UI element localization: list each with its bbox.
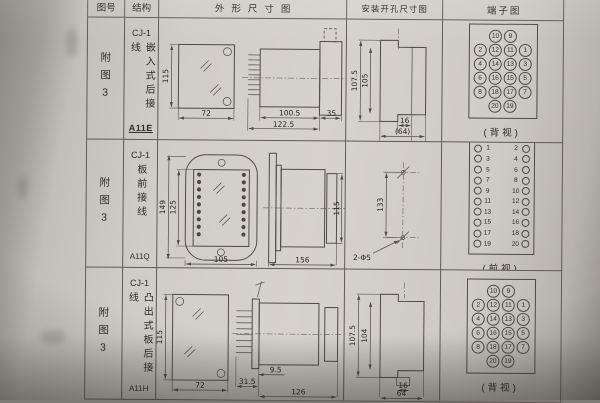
terminal-dot [522,145,530,153]
model-label: CJ-1 [132,28,151,38]
terminal-number-9: 9 [482,187,494,194]
model-label: CJ-1 [130,278,149,288]
terminal-circle-1: 1 [519,44,532,57]
dim-notch-width: 16 [400,116,410,125]
terminal-circle-14: 14 [487,313,500,326]
terminal-circle-6: 6 [474,72,487,85]
terminal-dot [473,219,481,227]
view-label-rear: (背视) [481,380,518,394]
terminal-circle-1: 1 [517,299,530,312]
figure-no-r2: 附图3 [86,140,124,268]
terminal-spacer [472,356,483,367]
dim-flange-depth: 35 [327,108,337,117]
terminal-circle-6: 6 [472,327,485,340]
terminal-circle-4: 4 [474,58,487,71]
dim-front-height: 115 [156,329,164,344]
terminal-dot [522,187,530,195]
terminal-circle-7: 7 [516,341,529,354]
terminal-circle-2: 2 [474,44,487,57]
terminal-circle-13: 13 [504,58,517,71]
terminal-dot [521,219,529,227]
model-label: CJ-1 [131,150,150,160]
terminal-diagram-r3: 1092121114141336161558181772019 (背视) [440,270,562,403]
install-svg-r1: 107.5 105 16 (64) [346,20,442,142]
terminal-circle-9: 9 [502,285,515,298]
terminal-circle-7: 7 [518,86,531,99]
dim-body-height: 125 [168,199,177,214]
terminal-diagram-r2: 1234567891011121314151617181920 (前视) [441,142,563,271]
terminal-spacer [474,101,485,112]
dim-front-width: 72 [201,108,211,117]
paper-smudge [40,330,66,344]
terminal-list: 1234567891011121314151617181920 [473,143,530,249]
terminal-circle-2: 2 [472,299,485,312]
figure-no-r1: 附图3 [87,18,125,140]
type-code: A11H [129,380,149,393]
terminal-number-14: 14 [510,209,522,216]
terminal-dot [521,240,529,248]
terminal-circle-19: 19 [503,100,516,113]
dim-body-length: 126 [291,387,306,396]
type-code-stamp: A11E [129,119,153,133]
terminal-circle-12: 12 [489,44,502,57]
outline-svg-r3: 115 72 9.5 31.5 126 [156,268,344,401]
terminal-circle-11: 11 [504,44,517,57]
terminal-circle-3: 3 [519,58,532,71]
paper-smudge [66,28,78,58]
dim-stud-depth: 9.5 [270,365,282,374]
dim-total-length: 122.5 [273,119,295,128]
relay-dimension-table: 图号 结构 外形尺寸图 安装开孔尺寸图 端子图 附图3 CJ-1 嵌入式后接线 … [84,0,564,403]
terminal-grid: 1092121114141336161558181772019 [473,30,533,113]
terminal-spacer [518,286,529,297]
terminal-number-2: 2 [510,145,522,152]
terminal-dot [474,176,482,184]
terminal-circle-20: 20 [486,355,499,368]
structure-r3: CJ-1 凸出式板后接线 A11H [122,268,157,400]
terminal-dot [522,166,530,174]
header-structure: 结构 [125,0,159,18]
terminal-dot [474,187,482,195]
terminal-circle-11: 11 [502,299,515,312]
install-drawing-r2: 133 2-Φ5 [345,142,442,271]
hole-spec-label: 2-Φ5 [353,253,371,262]
figure-no-text: 附图3 [96,306,111,360]
terminal-number-3: 3 [482,156,494,163]
dim-total-width: 64 [397,388,407,397]
terminal-dot [473,240,481,248]
terminal-number-15: 15 [481,219,493,226]
dim-flange-height: 149 [158,199,167,214]
terminal-row: 1112 [474,196,530,207]
install-drawing-r1: 107.5 105 16 (64) [346,20,443,143]
terminal-dot [474,166,482,174]
terminal-number-18: 18 [509,230,521,237]
terminal-number-8: 8 [510,177,522,184]
terminal-dot [522,177,530,185]
install-svg-r2: 133 2-Φ5 [345,142,441,270]
structure-r2: CJ-1 板前接线 A11Q [123,140,158,268]
terminal-spacer [519,101,530,112]
terminal-dot [521,230,529,238]
header-terminal-diagram: 端子图 [443,0,564,21]
terminal-number-4: 4 [510,156,522,163]
scanned-page-photo: 图号 结构 外形尺寸图 安装开孔尺寸图 端子图 附图3 CJ-1 嵌入式后接线 … [0,0,600,400]
terminal-row: 910 [474,185,530,196]
header-install-hole-dimensions: 安装开孔尺寸图 [347,0,443,20]
install-drawing-r3: 107.5 104 16 64 [344,270,441,403]
terminal-circle-9: 9 [504,30,517,43]
dim-inner-height: 105 [360,73,369,87]
terminal-circle-10: 10 [487,285,500,298]
terminal-spacer [473,286,484,297]
terminal-box: 1234567891011121314151617181920 [468,142,535,255]
terminal-number-11: 11 [482,198,494,205]
terminal-grid: 1092121114141336161558181772019 [471,285,531,368]
terminal-circle-17: 17 [503,86,516,99]
dim-side-length: 156 [295,255,310,264]
terminal-circle-8: 8 [471,341,484,354]
outline-drawing-r2: 149 125 105 156 115 [157,140,346,269]
type-code: A11Q [130,248,150,261]
terminal-number-7: 7 [482,177,494,184]
terminal-number-16: 16 [509,219,521,226]
terminal-number-5: 5 [482,166,494,173]
terminal-circle-5: 5 [519,72,532,85]
outline-drawing-r3: 115 72 9.5 31.5 126 [156,268,345,401]
dim-body-length: 100.5 [279,108,301,117]
terminal-circle-8: 8 [473,86,486,99]
terminal-number-1: 1 [482,145,494,152]
terminal-dot [474,208,482,216]
terminal-dot [473,229,481,237]
view-label-rear: (背视) [483,125,520,139]
terminal-dot [474,155,482,163]
terminal-number-10: 10 [510,188,522,195]
terminal-spacer [517,356,528,367]
terminal-dot [522,155,530,163]
terminal-row: 1314 [474,207,530,218]
dim-outer-height: 107.5 [350,69,359,91]
terminal-row: 12 [474,143,530,154]
terminal-row: 1718 [473,228,529,239]
terminal-row: 56 [474,164,530,175]
terminal-spacer [520,31,531,42]
dim-inner-height: 104 [360,328,369,342]
paper-smudge [18,176,28,198]
outline-svg-r1: 115 72 100.5 35 122.5 [158,18,346,141]
terminal-number-12: 12 [510,198,522,205]
outline-drawing-r1: 115 72 100.5 35 122.5 [158,18,347,141]
terminal-number-20: 20 [509,241,521,248]
terminal-circle-10: 10 [489,30,502,43]
terminal-circle-5: 5 [517,327,530,340]
terminal-dot [474,144,482,152]
terminal-circle-4: 4 [472,313,485,326]
terminal-circle-14: 14 [489,58,502,71]
dim-terminal-depth: 31.5 [239,376,256,385]
dim-outer-height: 107.5 [348,324,357,346]
dim-hole-spacing: 133 [376,197,385,211]
figure-no-text: 附图3 [97,176,112,230]
terminal-number-19: 19 [481,240,493,247]
terminal-box: 1092121114141336161558181772019 [468,24,538,120]
terminal-dot [522,198,530,206]
terminal-row: 1516 [473,217,529,228]
terminal-circle-16: 16 [487,327,500,340]
terminal-spacer [475,31,486,42]
terminal-circle-12: 12 [487,299,500,312]
outline-svg-r2: 149 125 105 156 115 [157,140,345,269]
terminal-circle-3: 3 [517,313,530,326]
terminal-circle-18: 18 [486,341,499,354]
terminal-circle-15: 15 [502,327,515,340]
terminal-row: 78 [474,175,530,186]
terminal-diagram-r1: 1092121114141336161558181772019 (背视) [442,20,564,143]
terminal-circle-13: 13 [502,313,515,326]
dim-total-width: (64) [395,126,410,135]
figure-no-text: 附图3 [98,51,113,105]
dim-side-height: 115 [332,201,341,216]
terminal-number-13: 13 [482,209,494,216]
terminal-circle-15: 15 [504,72,517,85]
terminal-circle-19: 19 [501,355,514,368]
dim-front-width: 72 [195,380,205,389]
install-svg-r3: 107.5 104 16 64 [344,270,440,402]
header-figure-no: 图号 [88,0,125,18]
figure-no-r3: 附图3 [85,268,123,400]
dim-front-width: 105 [214,254,229,263]
terminal-number-6: 6 [510,166,522,173]
structure-r1: CJ-1 嵌入式后接线 A11E [124,18,159,140]
wiring-type-label: 凸出式板后接线 [124,292,155,380]
wiring-type-label: 板前接线 [133,164,148,220]
terminal-circle-16: 16 [489,72,502,85]
terminal-circle-17: 17 [501,341,514,354]
terminal-row: 1920 [473,238,529,249]
wiring-type-label: 嵌入式后接线 [126,42,157,119]
terminal-circle-18: 18 [488,86,501,99]
terminal-dot [522,208,530,216]
terminal-circle-20: 20 [488,100,501,113]
header-outline-dimensions: 外形尺寸图 [159,0,347,20]
dim-front-height: 115 [161,68,170,83]
terminal-box: 1092121114141336161558181772019 [466,278,536,374]
terminal-row: 34 [474,154,530,165]
terminal-number-17: 17 [481,230,493,237]
terminal-dot [474,197,482,205]
